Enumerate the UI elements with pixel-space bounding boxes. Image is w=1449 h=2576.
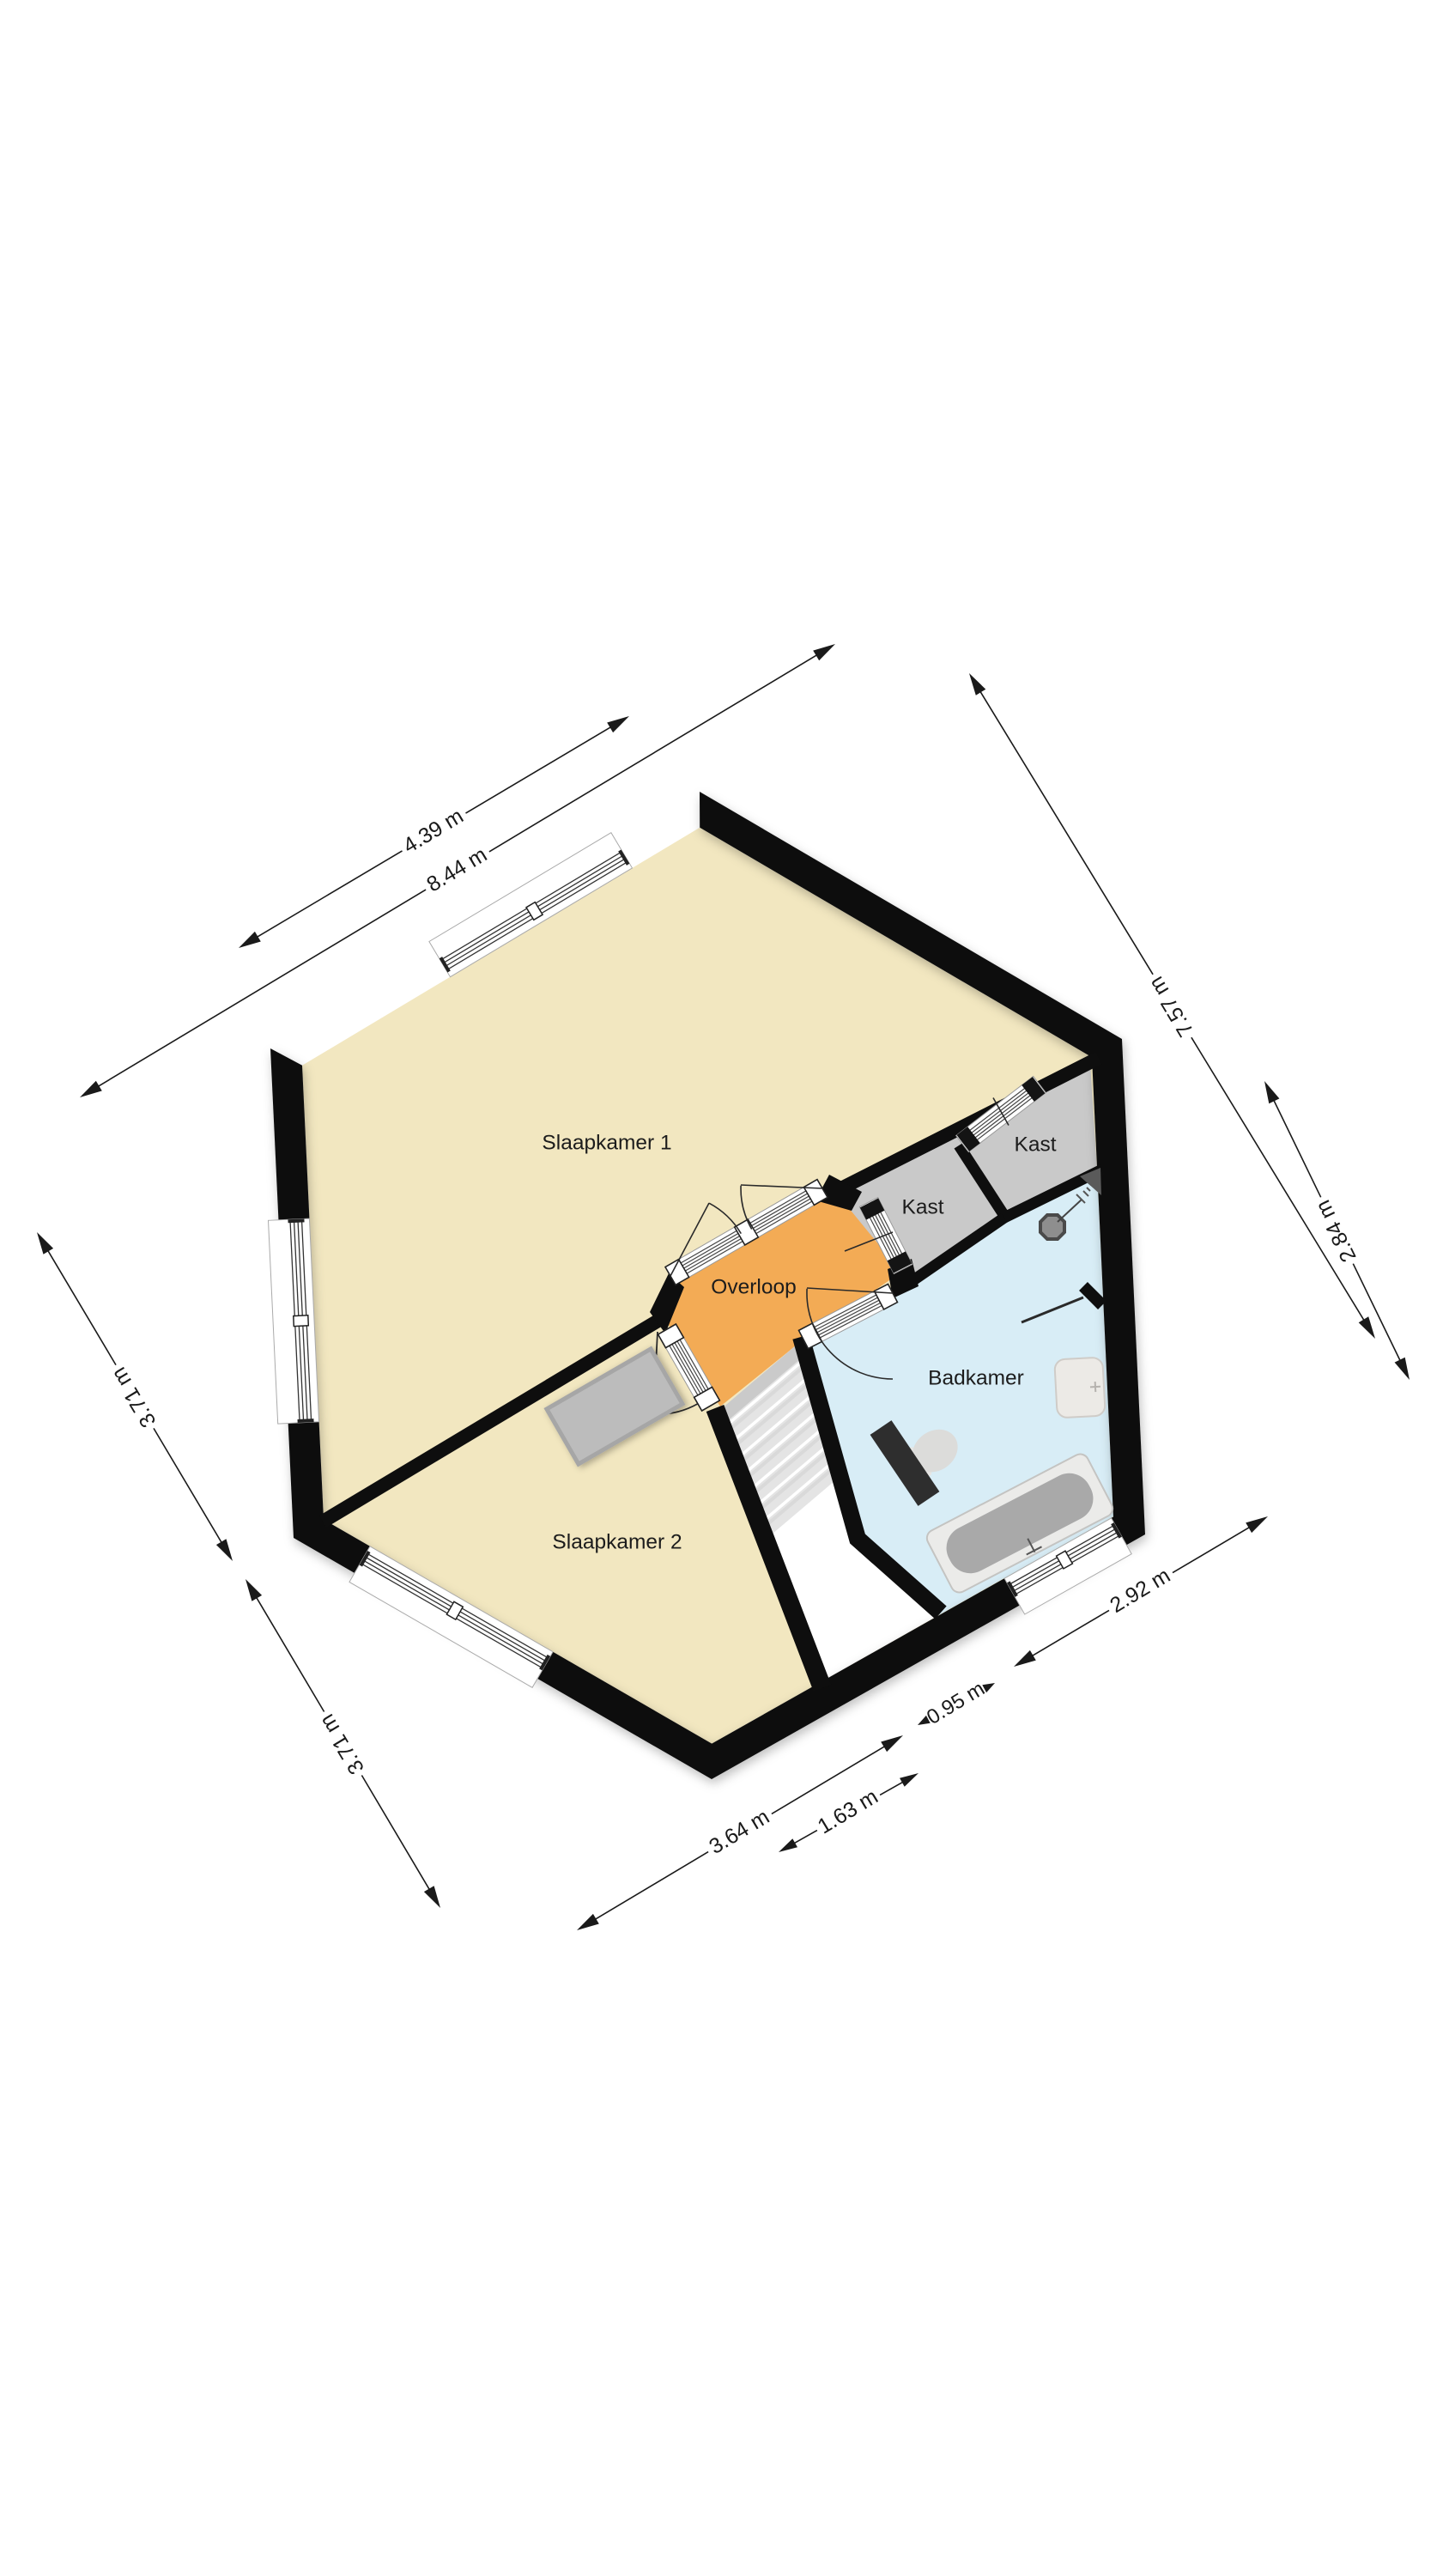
- svg-text:Kast: Kast: [1014, 1133, 1056, 1156]
- svg-text:Kast: Kast: [901, 1195, 943, 1218]
- svg-text:Slaapkamer 2: Slaapkamer 2: [552, 1530, 682, 1553]
- svg-text:Slaapkamer 1: Slaapkamer 1: [542, 1131, 671, 1154]
- svg-text:Badkamer: Badkamer: [928, 1366, 1024, 1389]
- svg-text:Overloop: Overloop: [711, 1275, 796, 1298]
